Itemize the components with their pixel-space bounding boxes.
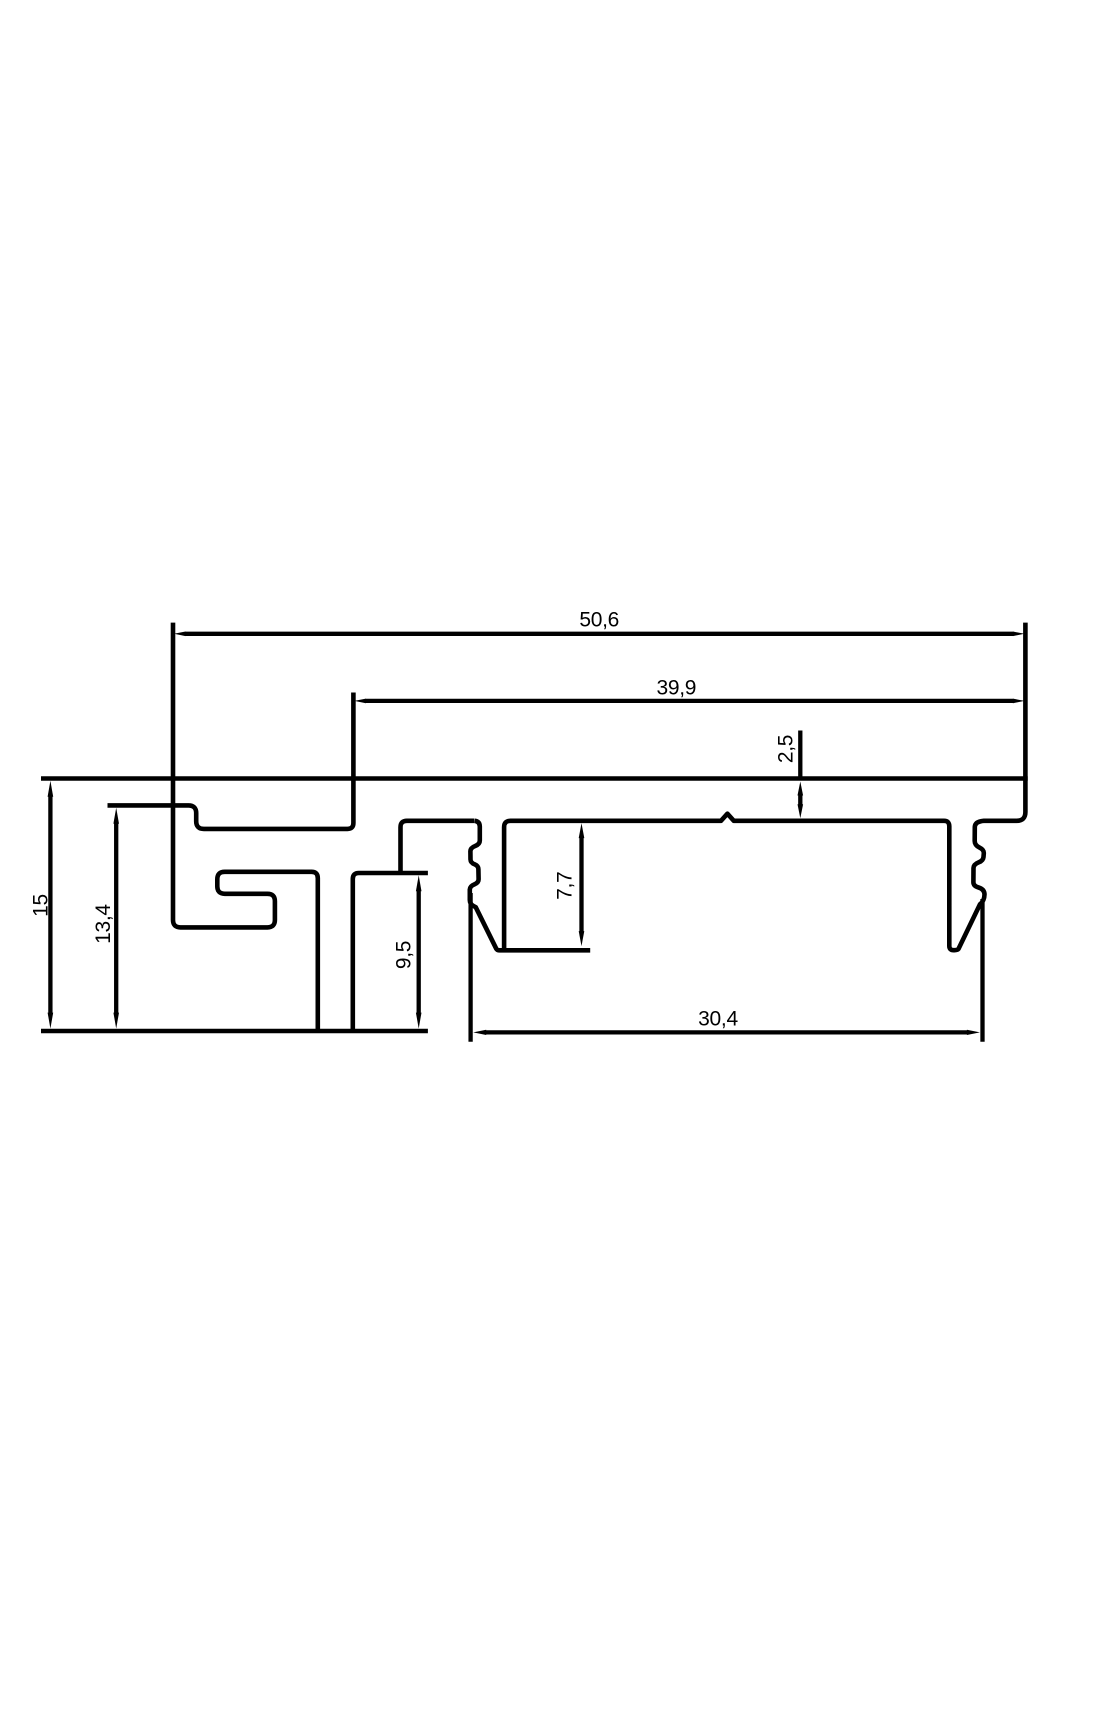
svg-text:9,5: 9,5 [393, 941, 416, 969]
svg-text:15: 15 [30, 894, 53, 917]
svg-text:30,4: 30,4 [698, 1007, 738, 1030]
svg-text:13,4: 13,4 [92, 904, 115, 944]
svg-text:2,5: 2,5 [774, 735, 797, 763]
svg-text:39,9: 39,9 [656, 677, 696, 700]
svg-text:50,6: 50,6 [579, 609, 619, 632]
svg-text:7,7: 7,7 [553, 872, 576, 900]
